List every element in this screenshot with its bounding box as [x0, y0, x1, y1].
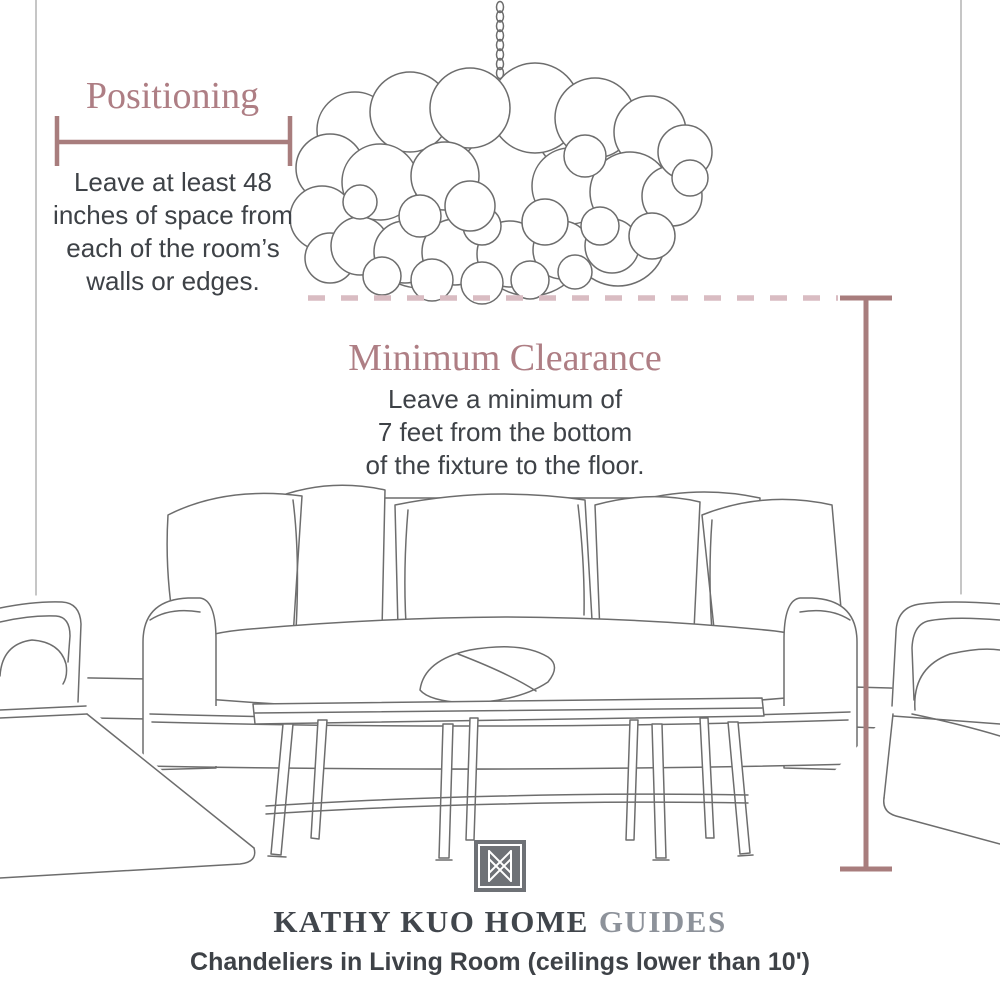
brand-name: KATHY KUO HOME	[273, 904, 589, 939]
kathy-kuo-home-logo-icon	[0, 840, 1000, 900]
positioning-measure-bracket	[57, 116, 290, 166]
clearance-title: Minimum Clearance	[255, 336, 755, 380]
brand-line: KATHY KUO HOMEGUIDES	[0, 902, 1000, 942]
footer: KATHY KUO HOMEGUIDES Chandeliers in Livi…	[0, 840, 1000, 978]
positioning-description: Leave at least 48 inches of space from e…	[28, 166, 318, 298]
positioning-title: Positioning	[40, 74, 305, 118]
clearance-description: Leave a minimum of 7 feet from the botto…	[255, 383, 755, 482]
sofa	[143, 485, 857, 770]
clearance-line: 7 feet from the bottom	[255, 416, 755, 449]
positioning-line: inches of space from	[28, 199, 318, 232]
positioning-line: walls or edges.	[28, 265, 318, 298]
clearance-line: Leave a minimum of	[255, 383, 755, 416]
clearance-line: of the fixture to the floor.	[255, 449, 755, 482]
brand-suffix: GUIDES	[599, 904, 727, 939]
infographic-canvas: Positioning Leave at least 48 inches of …	[0, 0, 1000, 1000]
bubble-chandelier-icon	[290, 63, 712, 304]
positioning-line: Leave at least 48	[28, 166, 318, 199]
infographic-caption: Chandeliers in Living Room (ceilings low…	[0, 946, 1000, 978]
positioning-line: each of the room’s	[28, 232, 318, 265]
chandelier-chain-icon	[497, 2, 504, 79]
